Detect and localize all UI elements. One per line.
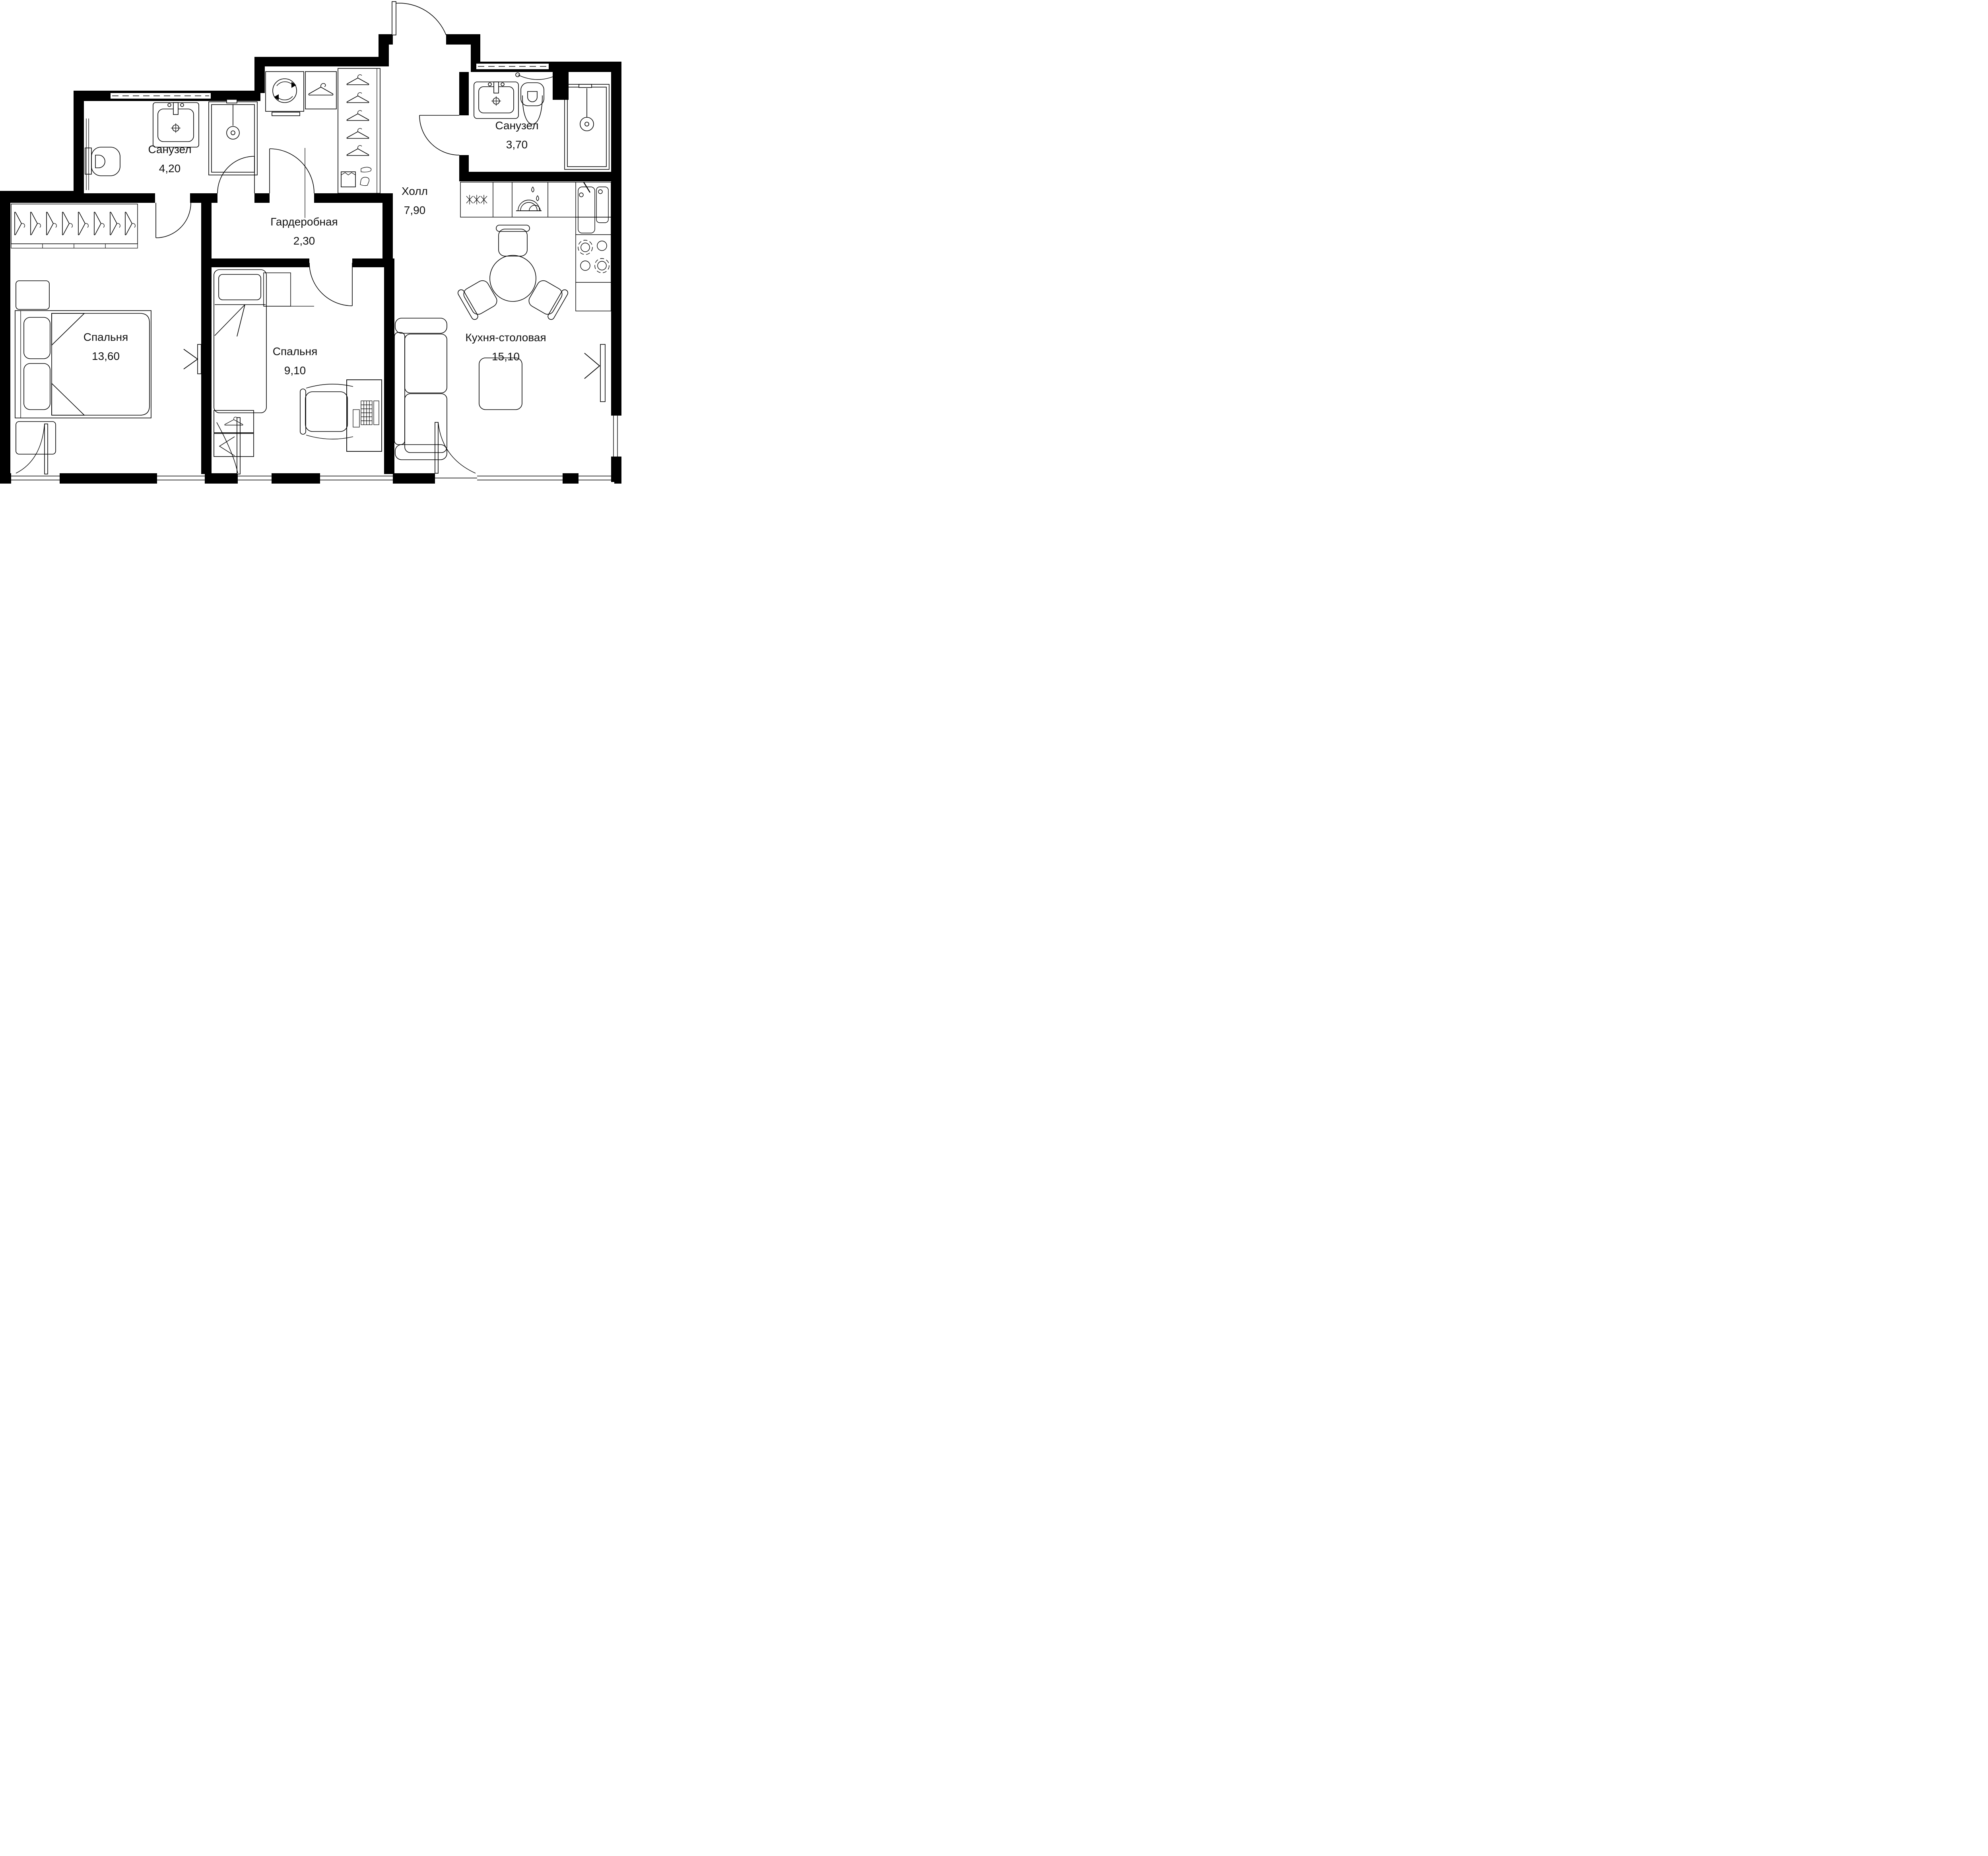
chair-icon — [496, 225, 530, 256]
chair-icon — [526, 276, 569, 321]
double-bed-icon — [15, 311, 151, 418]
floor-plan-drawing — [0, 0, 621, 484]
office-chair-icon — [300, 384, 353, 439]
tv-panel-icon — [184, 344, 201, 374]
pillow-icon — [24, 363, 50, 410]
shower-cabin-icon — [209, 99, 257, 175]
bathroom-2-fixtures — [474, 73, 609, 169]
desk-icon — [347, 380, 382, 451]
dishwasher-icon — [516, 187, 542, 211]
fridge-freezer-icon — [466, 195, 487, 204]
windows — [11, 64, 617, 480]
stove-icon — [578, 240, 609, 273]
balcony-door-kitchen — [435, 422, 476, 473]
bedroom-2-door-swing — [309, 263, 352, 306]
shoes-icon — [360, 167, 371, 185]
toilet-icon — [85, 119, 120, 190]
bedroom-1-door-swing — [156, 203, 191, 238]
open-closet-icon — [11, 204, 138, 248]
doors — [16, 2, 476, 474]
nightstand-icon — [16, 422, 56, 454]
kitchen-furniture — [394, 182, 611, 460]
sofa-icon — [394, 318, 447, 460]
box-icon — [341, 172, 355, 187]
nightstand-icon — [16, 281, 49, 309]
kitchen-counter — [460, 182, 611, 311]
laptop-icon — [353, 401, 379, 427]
bathroom-1-fixtures — [85, 99, 257, 190]
wardrobe-cabinet-icon — [338, 68, 380, 193]
entrance-door-swing — [392, 2, 446, 35]
washing-machine-icon — [266, 72, 304, 116]
vanity-sink-icon — [474, 82, 518, 119]
toilet-icon — [521, 83, 544, 124]
bedroom-1-furniture — [11, 204, 201, 454]
dining-table-icon — [490, 255, 536, 301]
bed-shelf-icon — [264, 273, 314, 306]
pillow-icon — [219, 274, 261, 300]
chair-icon — [457, 276, 501, 321]
kitchen-sink-icon — [578, 182, 608, 233]
bathroom-2-door-swing — [419, 115, 459, 155]
wardrobe-door-swing — [270, 149, 314, 193]
mini-wardrobe-icon — [214, 410, 254, 457]
single-bed-icon — [214, 270, 266, 413]
coat-closet-icon — [305, 72, 336, 109]
pillow-icon — [24, 317, 50, 359]
blanket — [52, 313, 149, 415]
hanger-icon — [309, 84, 333, 95]
walls — [0, 34, 621, 484]
balcony-door-bedroom-1 — [16, 424, 48, 474]
floor-plan: Санузел 4,20 Санузел 3,70 Гардеробная 2,… — [0, 0, 621, 484]
rug-icon — [479, 358, 522, 410]
vanity-sink-icon — [153, 103, 199, 147]
shower-cabin-icon — [565, 84, 609, 169]
mirror-panel-icon — [584, 344, 605, 402]
